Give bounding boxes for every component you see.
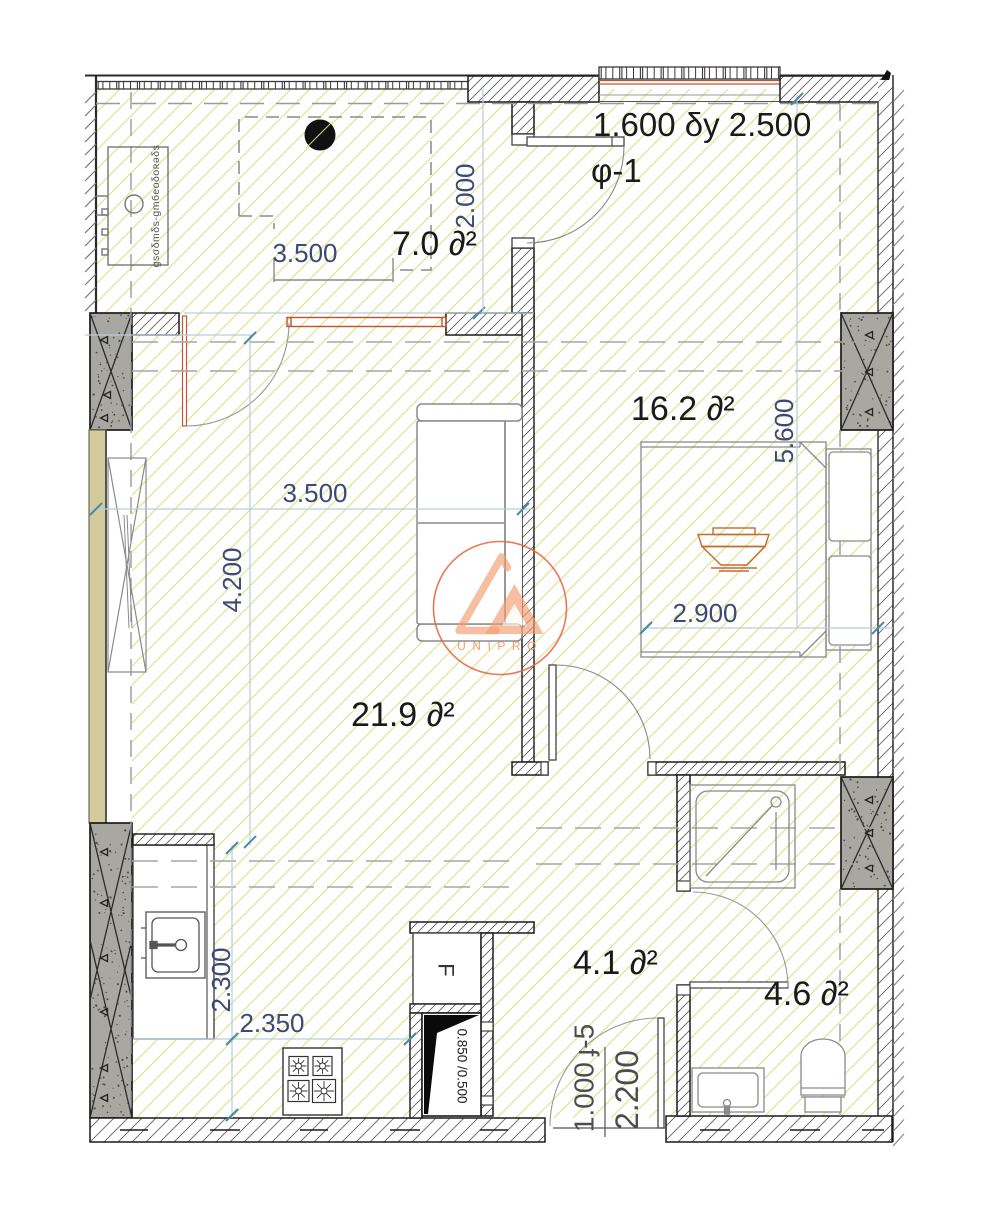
svg-text:4.1 ∂²: 4.1 ∂² <box>573 944 658 982</box>
svg-text:3.500: 3.500 <box>272 238 337 268</box>
svg-text:ɡsσδmδs-ɡmбеoδoʀəδs: ɡsσδmδs-ɡmбеoδoʀəδs <box>150 145 162 268</box>
svg-text:2.300: 2.300 <box>206 947 236 1012</box>
svg-text:16.2 ∂²: 16.2 ∂² <box>631 390 735 428</box>
svg-text:7.0 ∂²: 7.0 ∂² <box>392 225 477 263</box>
svg-text:1.000 ɟ-5: 1.000 ɟ-5 <box>569 1024 600 1132</box>
svg-text:4.6 ∂²: 4.6 ∂² <box>764 975 849 1013</box>
svg-text:2.900: 2.900 <box>672 598 737 628</box>
svg-text:UNIPRO: UNIPRO <box>457 639 543 653</box>
svg-text:2.200: 2.200 <box>609 1050 645 1130</box>
svg-text:F: F <box>434 963 459 976</box>
svg-text:3.500: 3.500 <box>282 478 347 508</box>
svg-text:5.600: 5.600 <box>769 398 799 463</box>
svg-text:φ-1: φ-1 <box>591 152 642 189</box>
svg-text:2.350: 2.350 <box>239 1008 304 1038</box>
svg-text:1.600 δy 2.500: 1.600 δy 2.500 <box>593 106 811 143</box>
svg-text:21.9 ∂²: 21.9 ∂² <box>351 696 455 734</box>
svg-text:2.000: 2.000 <box>450 163 480 228</box>
svg-text:4.200: 4.200 <box>217 547 247 612</box>
svg-text:0.850 /0.500: 0.850 /0.500 <box>455 1028 470 1103</box>
